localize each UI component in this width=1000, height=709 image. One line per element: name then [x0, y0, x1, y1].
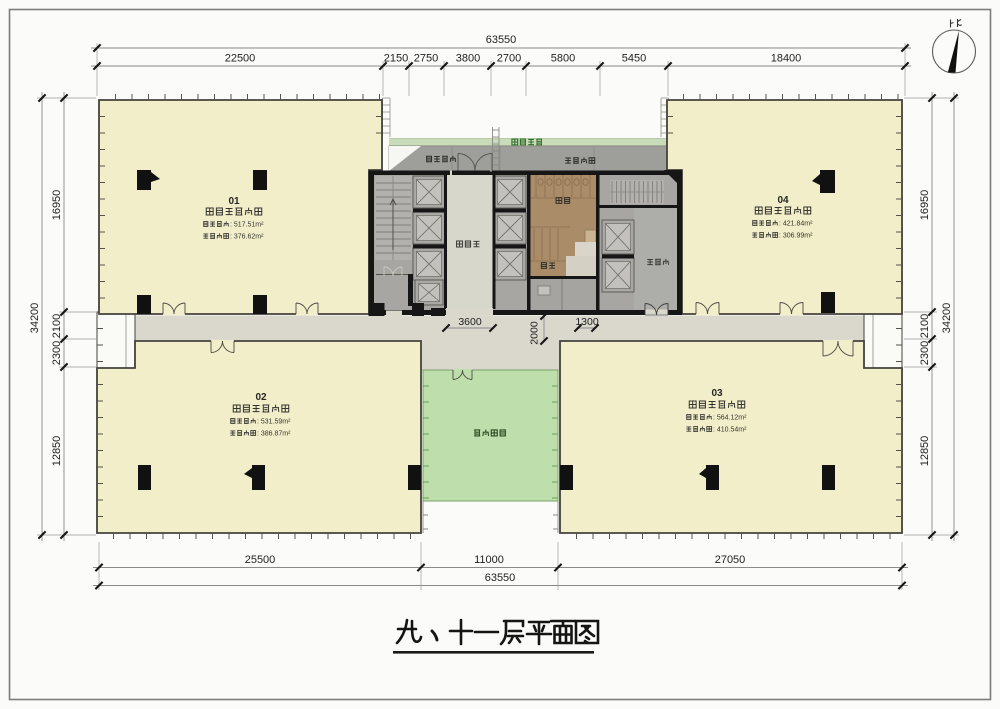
- svg-text:22500: 22500: [225, 53, 256, 65]
- svg-text:01: 01: [228, 196, 240, 207]
- svg-text:27050: 27050: [715, 554, 746, 566]
- svg-text:11000: 11000: [474, 554, 504, 566]
- svg-text:34200: 34200: [29, 303, 41, 334]
- svg-text:5800: 5800: [551, 53, 575, 65]
- svg-text:16950: 16950: [51, 190, 63, 221]
- svg-text:63550: 63550: [485, 572, 516, 584]
- svg-text:2300: 2300: [51, 341, 63, 365]
- svg-text:04: 04: [777, 195, 789, 206]
- svg-text:02: 02: [255, 392, 267, 403]
- svg-text:03: 03: [711, 388, 723, 399]
- svg-text:12850: 12850: [919, 436, 931, 467]
- svg-text:: 386.87m²: : 386.87m²: [257, 431, 291, 438]
- svg-text:5450: 5450: [622, 53, 646, 65]
- svg-text:: 531.59m²: : 531.59m²: [257, 419, 291, 426]
- svg-text:2150: 2150: [384, 53, 408, 65]
- svg-text:34200: 34200: [941, 303, 953, 334]
- svg-text:63550: 63550: [486, 34, 517, 46]
- svg-text:: 376.62m²: : 376.62m²: [230, 234, 264, 241]
- svg-text:25500: 25500: [245, 554, 276, 566]
- svg-text:18400: 18400: [771, 53, 802, 65]
- svg-text:: 564.12m²: : 564.12m²: [713, 415, 747, 422]
- svg-text:: 306.99m²: : 306.99m²: [779, 233, 813, 240]
- svg-text:2100: 2100: [919, 314, 931, 338]
- svg-text:2700: 2700: [497, 53, 521, 65]
- svg-text:2000: 2000: [529, 321, 541, 345]
- svg-text:: 410.54m²: : 410.54m²: [713, 427, 747, 434]
- svg-text:12850: 12850: [51, 436, 63, 467]
- svg-text:2100: 2100: [51, 314, 63, 338]
- svg-text:3800: 3800: [456, 53, 480, 65]
- svg-text:3600: 3600: [458, 316, 482, 328]
- svg-text:2750: 2750: [414, 53, 438, 65]
- svg-text:1300: 1300: [575, 316, 599, 328]
- svg-text:2300: 2300: [919, 341, 931, 365]
- svg-text:: 517.51m²: : 517.51m²: [230, 222, 264, 229]
- svg-text:16950: 16950: [919, 190, 931, 221]
- svg-text:: 421.84m²: : 421.84m²: [779, 221, 813, 228]
